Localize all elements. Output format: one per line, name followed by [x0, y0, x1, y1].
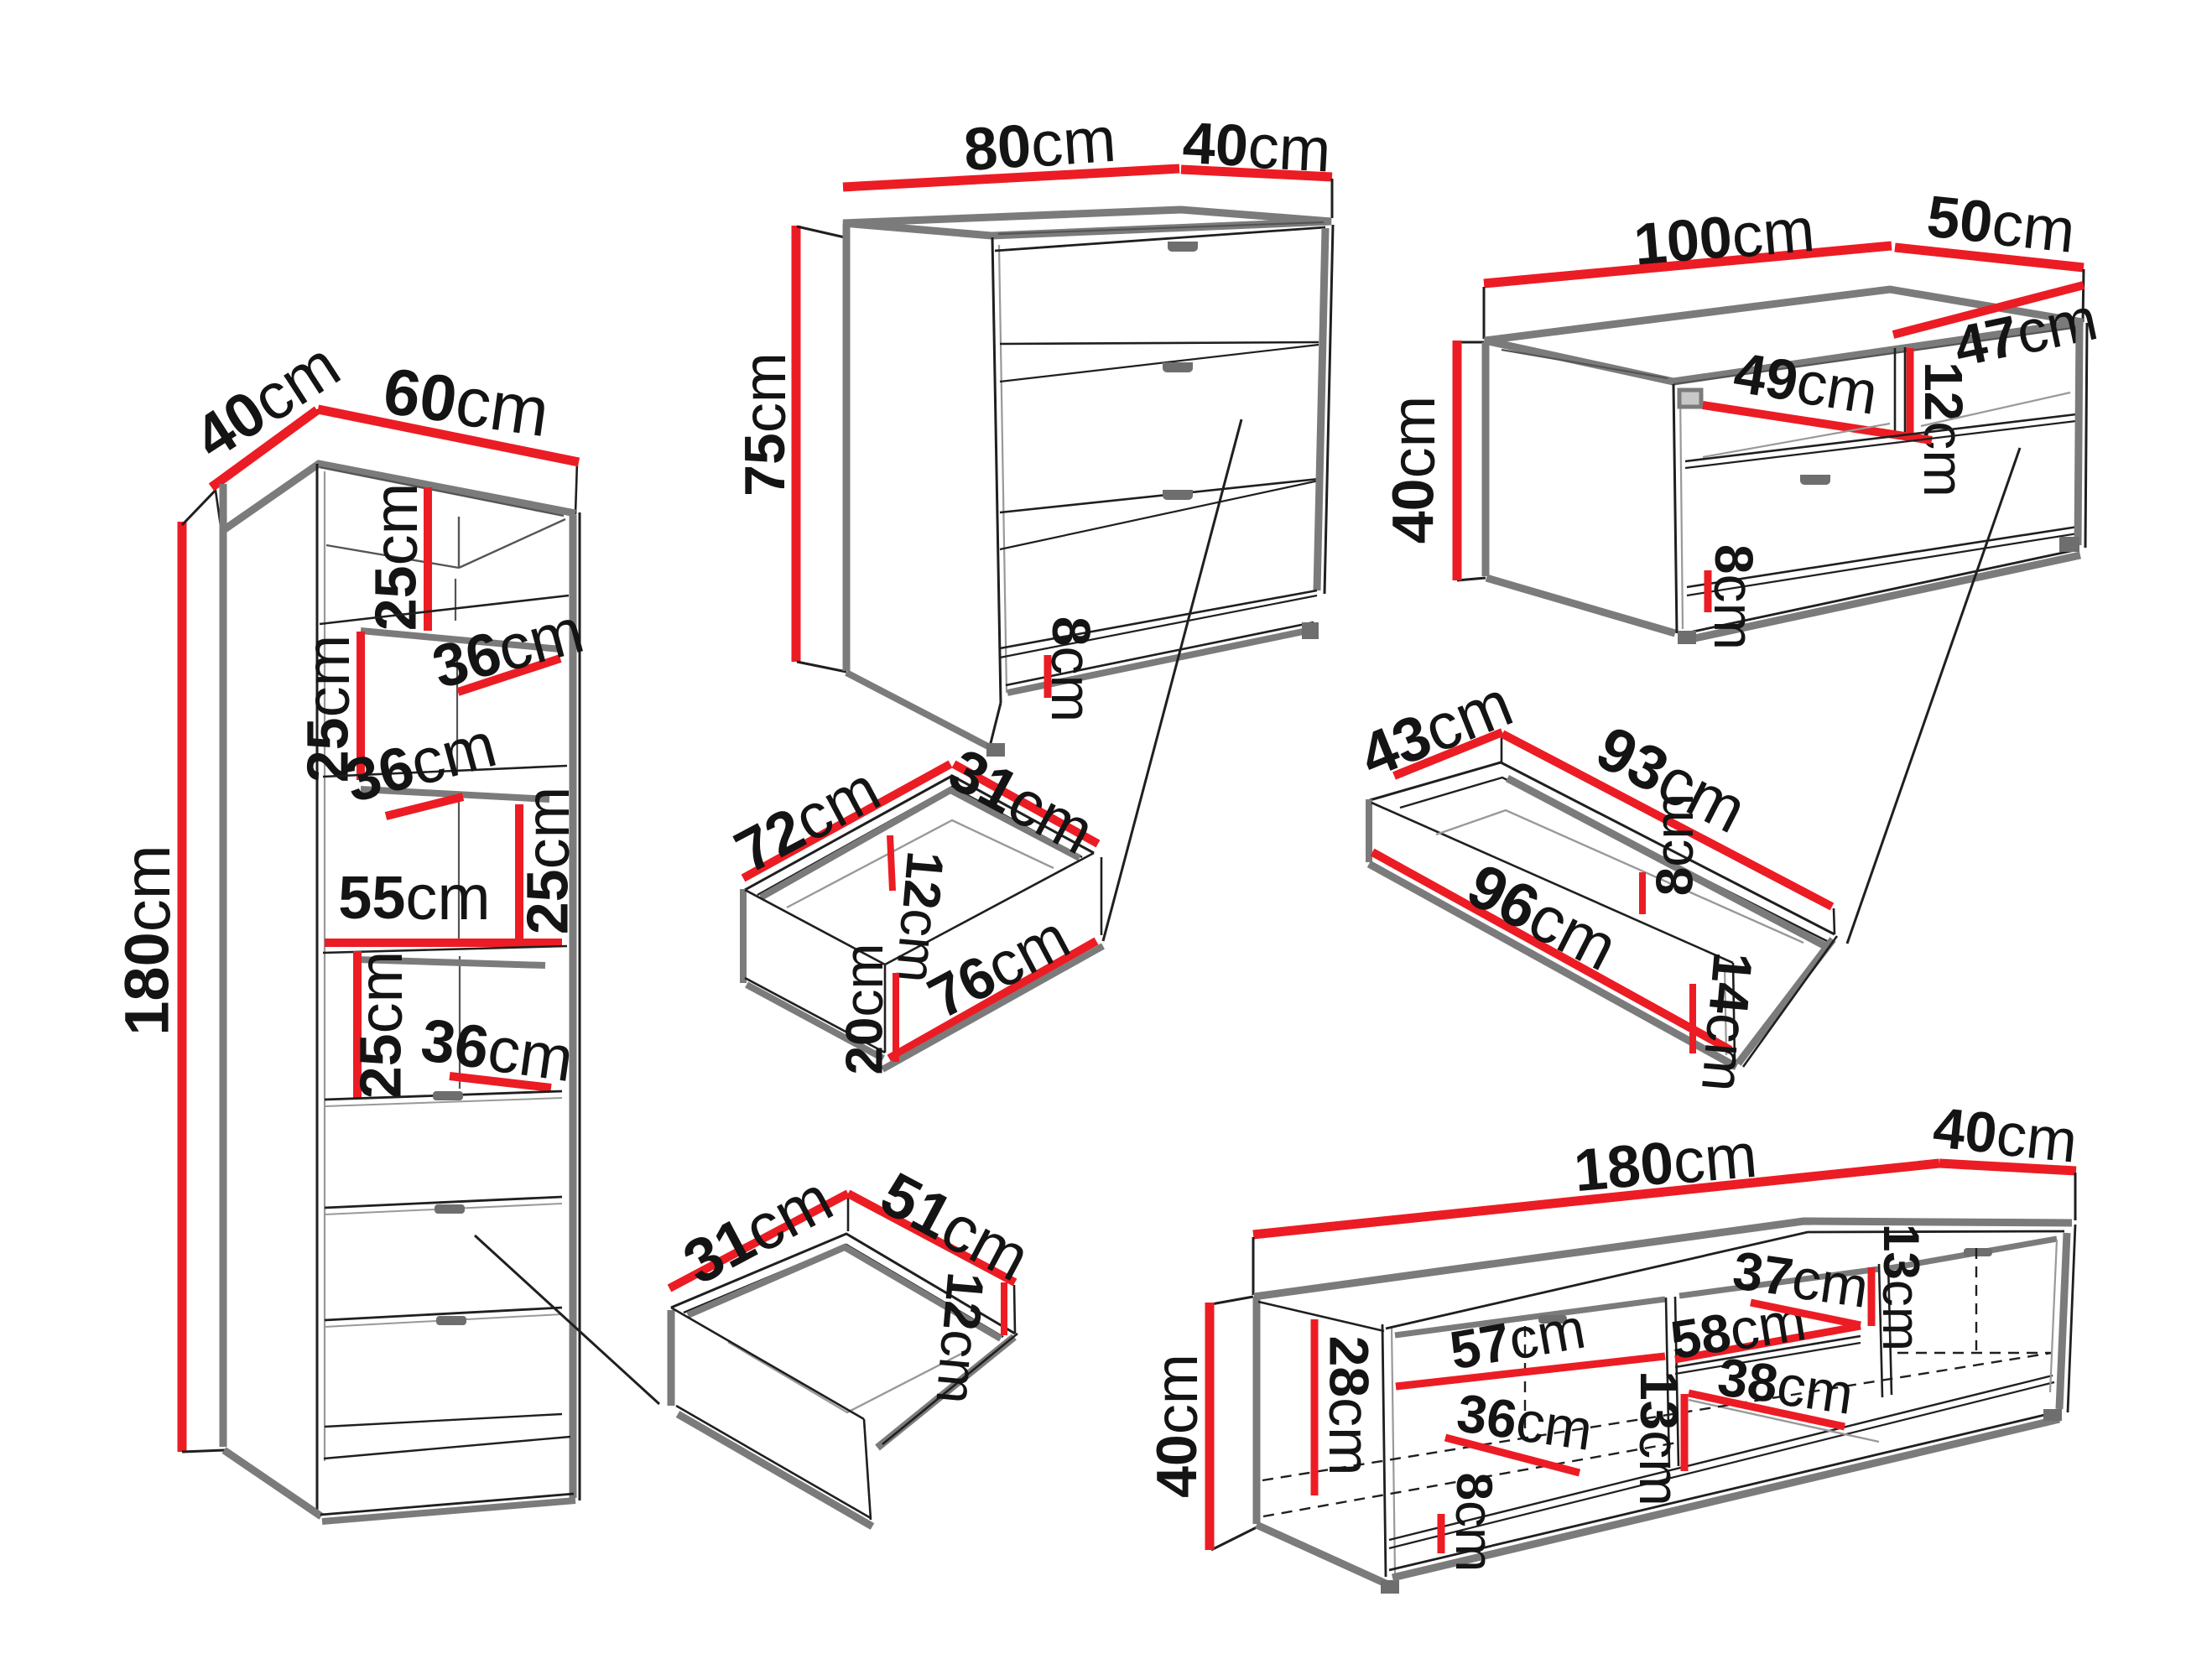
svg-text:8cm: 8cm: [1642, 793, 1705, 896]
svg-text:12cm: 12cm: [924, 1270, 997, 1407]
svg-text:25cm: 25cm: [361, 483, 430, 632]
svg-text:12cm: 12cm: [884, 849, 957, 986]
svg-text:180cm: 180cm: [110, 845, 184, 1035]
svg-text:28cm: 28cm: [1317, 1336, 1382, 1476]
svg-text:40cm: 40cm: [1378, 396, 1448, 544]
svg-text:80cm: 80cm: [961, 104, 1118, 185]
svg-text:13cm: 13cm: [1627, 1370, 1691, 1506]
svg-text:75cm: 75cm: [731, 352, 799, 497]
svg-text:25cm: 25cm: [346, 951, 415, 1100]
svg-text:13cm: 13cm: [1871, 1224, 1932, 1351]
svg-text:8cm: 8cm: [1039, 616, 1103, 722]
svg-text:8cm: 8cm: [1444, 1473, 1505, 1573]
svg-text:25cm: 25cm: [513, 787, 582, 935]
svg-text:55cm: 55cm: [338, 862, 490, 934]
svg-text:40cm: 40cm: [1181, 107, 1333, 185]
svg-text:8cm: 8cm: [1702, 544, 1766, 650]
svg-text:20cm: 20cm: [832, 944, 894, 1075]
svg-text:40cm: 40cm: [1143, 1354, 1210, 1498]
